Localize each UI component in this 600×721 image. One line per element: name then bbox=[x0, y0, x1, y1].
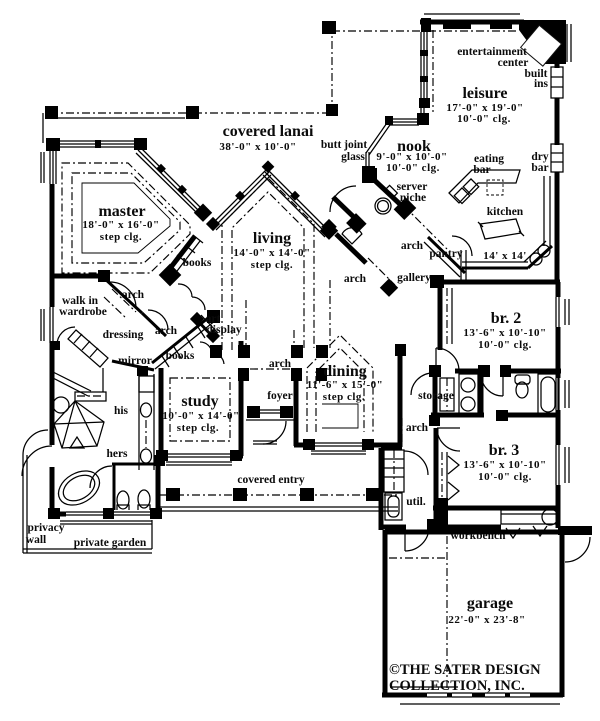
svg-text:garage: garage bbox=[467, 595, 513, 612]
svg-text:books: books bbox=[166, 350, 195, 362]
svg-text:22'-0" x 23'-8": 22'-0" x 23'-8" bbox=[448, 614, 525, 626]
svg-text:©THE SATER DESIGN: ©THE SATER DESIGN bbox=[389, 662, 541, 678]
svg-text:dressing: dressing bbox=[103, 329, 144, 341]
svg-text:glass: glass bbox=[341, 151, 365, 163]
svg-text:wardrobe: wardrobe bbox=[59, 306, 107, 318]
svg-text:13'-6" x 10'-10": 13'-6" x 10'-10" bbox=[463, 459, 546, 471]
svg-text:master: master bbox=[98, 203, 145, 220]
svg-text:niche: niche bbox=[400, 192, 426, 204]
svg-text:br. 3: br. 3 bbox=[489, 442, 520, 459]
svg-text:10'-0" clg.: 10'-0" clg. bbox=[478, 471, 532, 483]
svg-text:step clg.: step clg. bbox=[100, 231, 142, 243]
svg-text:10'-0" x 14'-0": 10'-0" x 14'-0" bbox=[162, 410, 239, 422]
svg-text:11'-6" x 15'-0": 11'-6" x 15'-0" bbox=[307, 379, 384, 391]
svg-text:14'-0" x 14'-0": 14'-0" x 14'-0" bbox=[233, 247, 310, 259]
svg-text:display: display bbox=[206, 324, 241, 336]
svg-text:10'-0" clg.: 10'-0" clg. bbox=[478, 339, 532, 351]
svg-text:step clg.: step clg. bbox=[177, 422, 219, 434]
svg-text:gallery: gallery bbox=[397, 272, 431, 284]
svg-text:18'-0" x 16'-0": 18'-0" x 16'-0" bbox=[82, 219, 159, 231]
svg-text:10'-0" clg.: 10'-0" clg. bbox=[457, 113, 511, 125]
svg-text:books: books bbox=[183, 257, 212, 269]
svg-text:study: study bbox=[181, 393, 218, 410]
svg-text:hers: hers bbox=[106, 448, 128, 460]
svg-text:step clg.: step clg. bbox=[323, 391, 365, 403]
svg-text:dining: dining bbox=[323, 363, 367, 380]
svg-text:leisure: leisure bbox=[462, 85, 507, 102]
svg-text:arch: arch bbox=[401, 240, 424, 252]
svg-text:14' x 14': 14' x 14' bbox=[483, 250, 527, 262]
svg-text:arch: arch bbox=[344, 273, 367, 285]
svg-text:arch: arch bbox=[269, 358, 292, 370]
svg-text:covered entry: covered entry bbox=[237, 474, 304, 486]
svg-text:private garden: private garden bbox=[74, 537, 147, 549]
svg-text:10'-0" clg.: 10'-0" clg. bbox=[386, 162, 440, 174]
svg-text:bar: bar bbox=[531, 162, 548, 174]
svg-text:arch: arch bbox=[406, 422, 429, 434]
svg-text:38'-0" x 10'-0": 38'-0" x 10'-0" bbox=[219, 141, 296, 153]
svg-text:13'-6" x 10'-10": 13'-6" x 10'-10" bbox=[463, 327, 546, 339]
svg-text:kitchen: kitchen bbox=[487, 206, 524, 218]
svg-text:storage: storage bbox=[418, 390, 454, 402]
svg-text:pantry: pantry bbox=[429, 248, 462, 260]
svg-text:privacy: privacy bbox=[27, 522, 64, 534]
svg-text:his: his bbox=[114, 405, 129, 417]
svg-text:butt joint: butt joint bbox=[321, 139, 367, 151]
svg-text:living: living bbox=[253, 230, 291, 247]
svg-text:ins: ins bbox=[534, 78, 549, 90]
svg-text:util.: util. bbox=[406, 496, 426, 508]
svg-text:mirror: mirror bbox=[118, 355, 152, 367]
svg-text:br. 2: br. 2 bbox=[491, 310, 522, 327]
svg-text:step clg.: step clg. bbox=[251, 259, 293, 271]
svg-text:COLLECTION, INC.: COLLECTION, INC. bbox=[389, 678, 525, 694]
svg-text:covered lanai: covered lanai bbox=[223, 123, 314, 140]
svg-text:wall: wall bbox=[26, 534, 46, 546]
svg-text:foyer: foyer bbox=[267, 390, 293, 402]
